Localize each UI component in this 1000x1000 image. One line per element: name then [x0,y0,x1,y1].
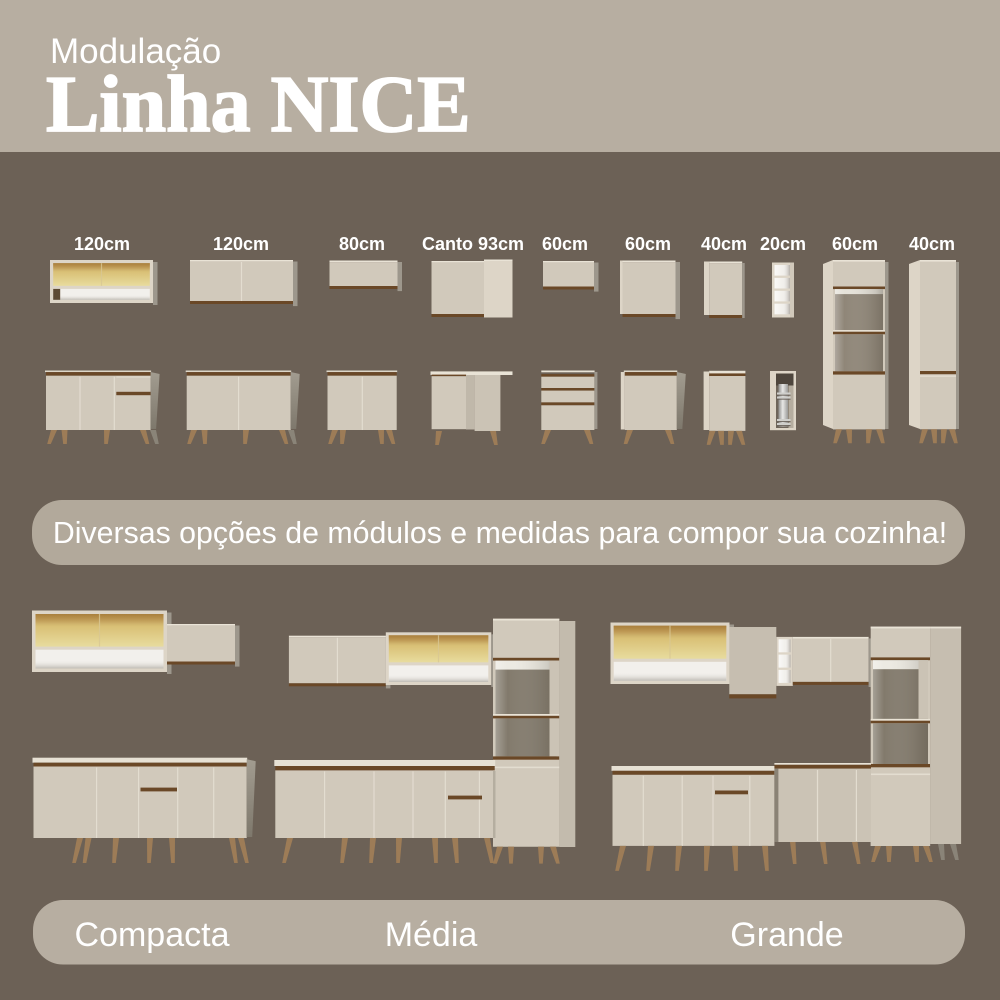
svg-text:Compacta: Compacta [75,916,230,954]
svg-text:Canto 93cm: Canto 93cm [422,234,524,254]
svg-text:40cm: 40cm [701,234,747,254]
svg-text:80cm: 80cm [339,234,385,254]
svg-text:20cm: 20cm [760,234,806,254]
svg-text:60cm: 60cm [625,234,671,254]
svg-text:60cm: 60cm [832,234,878,254]
svg-text:Linha NICE: Linha NICE [46,61,471,149]
svg-text:60cm: 60cm [542,234,588,254]
svg-text:120cm: 120cm [74,234,130,254]
svg-text:120cm: 120cm [213,234,269,254]
svg-text:Diversas opções de módulos e m: Diversas opções de módulos e medidas par… [53,517,947,550]
svg-text:Média: Média [385,916,478,954]
svg-text:Grande: Grande [730,916,843,954]
svg-text:40cm: 40cm [909,234,955,254]
